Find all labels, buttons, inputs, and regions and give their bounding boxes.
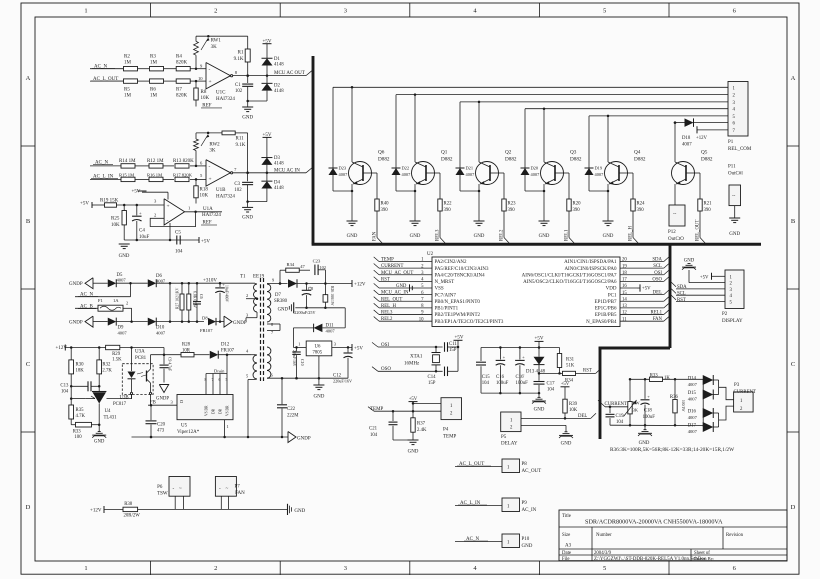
svg-text:U6: U6 <box>315 345 321 350</box>
svg-text:GND: GND <box>408 450 419 455</box>
svg-text:HAI7324: HAI7324 <box>216 195 235 200</box>
svg-text:P10: P10 <box>522 537 530 542</box>
svg-text:R36: R36 <box>670 395 679 400</box>
svg-text:2.7K: 2.7K <box>102 369 112 374</box>
svg-text:GND: GND <box>410 234 421 239</box>
svg-text:P5: P5 <box>501 435 507 440</box>
svg-text:--: -- <box>673 212 677 217</box>
svg-text:C9 4.7uF: C9 4.7uF <box>168 357 172 371</box>
svg-text:15P: 15P <box>428 381 436 386</box>
svg-text:GND: GND <box>313 395 324 400</box>
svg-text:4007: 4007 <box>682 143 692 148</box>
svg-text:C16': C16' <box>516 375 525 380</box>
svg-text:U5: U5 <box>181 424 188 429</box>
svg-text:4.7K: 4.7K <box>76 414 86 419</box>
svg-text:FAN: FAN <box>373 231 378 241</box>
svg-text:390: 390 <box>508 208 516 213</box>
svg-text:20: 20 <box>622 258 627 263</box>
svg-text:FR107: FR107 <box>221 348 235 353</box>
svg-text:REL2: REL2 <box>381 317 393 322</box>
svg-text:MCU_AC_OUT: MCU_AC_OUT <box>381 271 413 276</box>
svg-text:100uF: 100uF <box>516 381 529 386</box>
svg-text:HAI7324: HAI7324 <box>202 213 221 218</box>
svg-text:104: 104 <box>370 433 378 438</box>
svg-text:10: 10 <box>198 76 203 81</box>
svg-text:+: + <box>167 203 170 209</box>
svg-text:SDA: SDA <box>652 258 662 263</box>
svg-text:EP1C/PB6: EP1C/PB6 <box>595 307 617 312</box>
svg-text:5: 5 <box>603 565 606 572</box>
svg-text:REL_COM: REL_COM <box>728 147 752 152</box>
svg-text:9.1K: 9.1K <box>234 57 244 62</box>
svg-text:2200uF/25V: 2200uF/25V <box>294 310 315 315</box>
svg-text:VDD: VDD <box>606 287 617 292</box>
svg-text:Q4: Q4 <box>634 150 641 156</box>
svg-text:OSO: OSO <box>652 277 662 282</box>
svg-text:R30: R30 <box>76 363 85 368</box>
svg-text:3K: 3K <box>211 45 218 50</box>
svg-text:PA2/CIN2/AN2: PA2/CIN2/AN2 <box>435 260 468 265</box>
svg-text:104: 104 <box>616 420 624 425</box>
svg-text:REL3: REL3 <box>381 311 393 316</box>
svg-text:VS DR: VS DR <box>205 405 209 416</box>
svg-text:Z:\YGGZWJ\..\ST-DDB-820K-REL5A: Z:\YGGZWJ\..\ST-DDB-820K-REL5A V1.0nn.Sc… <box>594 557 707 562</box>
svg-text:1M: 1M <box>124 94 132 99</box>
svg-text:+5V: +5V <box>535 337 544 342</box>
svg-text:R15 1M: R15 1M <box>119 172 134 177</box>
svg-text:D23: D23 <box>339 166 347 171</box>
svg-text:222M: 222M <box>287 414 299 419</box>
svg-text:D: D <box>179 400 184 403</box>
svg-text:+5V: +5V <box>409 397 418 402</box>
svg-text:AIN5/OSC2/CLKO/T16GGI/T16GOSC2: AIN5/OSC2/CLKO/T16GGI/T16GOSC2/PA6 <box>523 280 617 285</box>
svg-text:HAI7324: HAI7324 <box>216 97 235 102</box>
svg-text:12: 12 <box>622 311 627 316</box>
svg-text:+5V: +5V <box>455 336 464 341</box>
svg-text:3K: 3K <box>633 408 639 413</box>
svg-text:PC1: PC1 <box>608 293 617 298</box>
svg-text:4007: 4007 <box>531 172 541 177</box>
svg-text:2: 2 <box>246 293 248 298</box>
svg-text:104: 104 <box>482 381 490 386</box>
svg-text:MCU_AC_IN: MCU_AC_IN <box>381 291 409 296</box>
svg-text:D882: D882 <box>441 157 453 163</box>
svg-text:D16: D16 <box>688 410 697 415</box>
svg-text:U4: U4 <box>105 409 111 414</box>
svg-text:D7: D7 <box>275 293 281 298</box>
svg-text:T1: T1 <box>240 275 246 280</box>
svg-text:4007: 4007 <box>688 415 698 420</box>
svg-text:OutCtO: OutCtO <box>668 237 684 242</box>
svg-text:6: 6 <box>219 378 221 382</box>
svg-text:R29: R29 <box>112 352 121 357</box>
svg-text:R39: R39 <box>569 402 578 407</box>
svg-text:C20: C20 <box>157 423 166 428</box>
svg-text:C3: C3 <box>234 182 240 187</box>
svg-text:A: A <box>26 75 31 82</box>
svg-text:Viper12A*: Viper12A* <box>177 430 200 435</box>
svg-text:R37: R37 <box>417 422 426 427</box>
svg-text:D22: D22 <box>402 166 410 171</box>
svg-text:P1: P1 <box>728 140 734 145</box>
svg-text:3: 3 <box>344 8 347 15</box>
svg-text:U3B: U3B <box>120 396 129 401</box>
svg-text:GNDP: GNDP <box>297 436 311 441</box>
svg-text:3K: 3K <box>209 149 216 154</box>
svg-text:AC_OUT: AC_OUT <box>522 469 542 474</box>
svg-text:-: - <box>173 486 175 492</box>
svg-text:4007: 4007 <box>339 172 349 177</box>
svg-text:Drawn By:: Drawn By: <box>694 556 714 561</box>
svg-text:R5: R5 <box>124 88 130 93</box>
svg-text:+12V: +12V <box>354 283 366 288</box>
svg-text:MCU AC IN: MCU AC IN <box>274 168 300 173</box>
svg-text:1: 1 <box>227 424 229 429</box>
svg-text:TSW: TSW <box>157 491 168 496</box>
svg-text:Drain: Drain <box>214 368 225 373</box>
svg-text:R13 820K: R13 820K <box>173 159 194 164</box>
svg-text:+5V: +5V <box>132 190 141 195</box>
svg-text:4148: 4148 <box>274 161 284 166</box>
svg-text:1: 1 <box>298 342 300 347</box>
svg-text:Size: Size <box>562 533 570 538</box>
svg-text:MCU AC OUT: MCU AC OUT <box>274 71 305 76</box>
svg-text:PB2/TE1PWM/PINT2: PB2/TE1PWM/PINT2 <box>435 313 481 318</box>
svg-text:REL1: REL1 <box>651 311 663 316</box>
svg-text:+: + <box>139 210 142 215</box>
svg-text:GNDP: GNDP <box>69 321 83 326</box>
svg-text:P3: P3 <box>734 383 740 388</box>
svg-text:16: 16 <box>622 284 627 289</box>
svg-text:-: - <box>167 217 169 223</box>
svg-text:TEMP: TEMP <box>443 434 457 439</box>
svg-text:GND: GND <box>639 441 650 446</box>
svg-text:4007: 4007 <box>326 329 336 334</box>
svg-text:390: 390 <box>637 208 645 213</box>
svg-text:GND: GND <box>347 234 358 239</box>
svg-text:SR380: SR380 <box>274 299 288 304</box>
svg-text:R14 1M: R14 1M <box>119 159 136 164</box>
svg-text:R17 820K: R17 820K <box>173 172 193 177</box>
svg-text:R1: R1 <box>238 51 244 56</box>
svg-text:Date: Date <box>562 551 571 556</box>
svg-text:C13: C13 <box>60 384 69 389</box>
svg-text:51K: 51K <box>566 364 575 369</box>
svg-text:R27 102/1KV: R27 102/1KV <box>176 287 180 309</box>
svg-text:CURRENT: CURRENT <box>605 402 627 407</box>
svg-text:390: 390 <box>444 208 452 213</box>
svg-text:104: 104 <box>547 388 555 393</box>
svg-text:P7: P7 <box>235 484 241 489</box>
svg-text:PA4/C20/T8NCKI/AIN4: PA4/C20/T8NCKI/AIN4 <box>435 273 486 278</box>
svg-text:TEMP: TEMP <box>381 258 394 263</box>
svg-text:~: ~ <box>179 486 182 492</box>
svg-text:SCL: SCL <box>653 264 662 269</box>
svg-text:D21: D21 <box>466 166 474 171</box>
svg-text:100uF: 100uF <box>496 381 509 386</box>
svg-text:R38: R38 <box>124 502 133 507</box>
svg-text:1M: 1M <box>150 94 158 99</box>
svg-text:C1: C1 <box>235 83 241 88</box>
svg-text:DEL: DEL <box>578 414 587 419</box>
svg-text:+5V: +5V <box>561 382 570 387</box>
svg-text:C11: C11 <box>449 342 457 347</box>
svg-text:B: B <box>26 218 31 225</box>
svg-text:820K: 820K <box>176 61 188 66</box>
svg-text:D: D <box>791 504 796 511</box>
svg-text:390: 390 <box>704 208 712 213</box>
svg-text:+12V: +12V <box>90 508 102 513</box>
svg-text:GNDP: GNDP <box>233 321 247 326</box>
svg-text:FAN: FAN <box>653 317 663 322</box>
svg-text:1: 1 <box>84 565 87 572</box>
svg-text:20R/2W: 20R/2W <box>124 513 141 518</box>
svg-text:+5V: +5V <box>642 287 651 292</box>
svg-text:390: 390 <box>573 208 581 213</box>
svg-text:R33: R33 <box>73 430 82 435</box>
svg-text:R2: R2 <box>124 55 130 60</box>
svg-text:+5V: +5V <box>354 346 363 351</box>
svg-text:1: 1 <box>84 8 87 15</box>
svg-text:C21: C21 <box>369 427 378 432</box>
svg-text:U1C: U1C <box>216 91 226 96</box>
svg-text:1M: 1M <box>124 61 132 66</box>
svg-text:104: 104 <box>175 250 183 255</box>
svg-text:8: 8 <box>205 378 207 382</box>
svg-text:U2: U2 <box>427 252 434 257</box>
svg-text:DEL: DEL <box>653 291 662 296</box>
svg-text:D882: D882 <box>505 157 517 163</box>
svg-text:Number: Number <box>596 533 612 538</box>
svg-text:F1: F1 <box>98 298 104 303</box>
svg-text:PC817: PC817 <box>113 402 127 407</box>
svg-text:15: 15 <box>622 291 627 296</box>
svg-text:PA5/REF/C10/CIN3/AIN3: PA5/REF/C10/CIN3/AIN3 <box>435 267 489 272</box>
svg-text:REL1: REL1 <box>565 229 570 241</box>
svg-text:EP1B/PB5: EP1B/PB5 <box>595 313 617 318</box>
svg-text:2.4K: 2.4K <box>417 428 427 433</box>
svg-text:A3: A3 <box>565 544 572 549</box>
svg-text:SCL: SCL <box>677 292 686 297</box>
svg-text:7805: 7805 <box>313 351 323 356</box>
svg-text:C23: C23 <box>313 258 321 263</box>
svg-text:4148: 4148 <box>274 63 284 68</box>
svg-text:10uF: 10uF <box>139 235 150 240</box>
svg-text:GND: GND <box>603 234 614 239</box>
svg-text:N_EPAS0/PB4: N_EPAS0/PB4 <box>586 320 617 325</box>
svg-text:D12: D12 <box>221 343 230 348</box>
svg-text:R25: R25 <box>111 217 120 222</box>
svg-text:R24: R24 <box>637 202 646 207</box>
svg-text:4148: 4148 <box>274 89 284 94</box>
svg-text:4007: 4007 <box>466 172 476 177</box>
svg-text:RST: RST <box>381 277 390 282</box>
svg-text:17: 17 <box>622 278 627 283</box>
svg-text:REL_OUT: REL_OUT <box>696 220 701 241</box>
svg-text:OutC#l: OutC#l <box>728 172 743 177</box>
svg-text:+5V: +5V <box>201 239 210 244</box>
svg-text:FR107: FR107 <box>200 328 213 333</box>
svg-text:473: 473 <box>157 429 165 434</box>
svg-text:5: 5 <box>603 8 606 15</box>
svg-text:D20: D20 <box>531 166 539 171</box>
svg-text:SDR/ACDR8000VA-20000VA CNH550: SDR/ACDR8000VA-20000VA CNH5500VA-18000VA <box>585 519 723 526</box>
svg-text:--: -- <box>732 194 736 199</box>
svg-text:10: 10 <box>419 317 424 322</box>
svg-text:D882: D882 <box>570 157 582 163</box>
svg-text:GNDP: GNDP <box>156 397 169 402</box>
svg-text:+: + <box>209 176 212 182</box>
svg-text:+: + <box>522 355 525 360</box>
svg-text:D: D <box>26 504 31 511</box>
svg-text:R33: R33 <box>650 373 659 378</box>
svg-text:C4: C4 <box>139 229 145 234</box>
svg-text:16MHz: 16MHz <box>404 361 420 366</box>
svg-text:N_MRST: N_MRST <box>435 280 455 285</box>
svg-text:P8: P8 <box>522 462 528 467</box>
svg-text:R6: R6 <box>150 88 156 93</box>
svg-text:GND: GND <box>534 408 545 413</box>
svg-text:Title: Title <box>562 514 571 519</box>
svg-text:GND: GND <box>684 259 695 264</box>
svg-text:DR: DR <box>212 408 216 414</box>
svg-text:GND: GND <box>242 115 253 120</box>
svg-text:4148: 4148 <box>274 186 284 191</box>
svg-text:FAN: FAN <box>235 491 245 496</box>
svg-text:4007: 4007 <box>688 429 698 434</box>
svg-text:+: + <box>209 79 212 85</box>
svg-text:Q3: Q3 <box>570 150 577 156</box>
svg-text:R16 1M: R16 1M <box>147 172 162 177</box>
svg-text:U1B: U1B <box>216 188 226 193</box>
svg-text:U1A: U1A <box>203 207 213 212</box>
svg-text:REL2: REL2 <box>500 229 505 241</box>
svg-text:R34: R34 <box>287 262 295 267</box>
svg-text:1A: 1A <box>113 298 119 303</box>
svg-text:100uF: 100uF <box>643 415 656 420</box>
svg-text:18K: 18K <box>76 369 85 374</box>
svg-text:4007: 4007 <box>402 172 412 177</box>
svg-text:A: A <box>791 75 796 82</box>
svg-text:-: - <box>219 486 221 492</box>
svg-text:R28: R28 <box>182 343 191 348</box>
svg-text:+5V: +5V <box>700 275 709 280</box>
svg-text:D882: D882 <box>634 157 646 163</box>
svg-text:P6: P6 <box>157 485 163 490</box>
svg-text:100: 100 <box>74 435 82 440</box>
svg-text:R21: R21 <box>704 202 713 207</box>
svg-text:+5V: +5V <box>80 202 89 207</box>
svg-text:9.1K: 9.1K <box>236 143 246 148</box>
svg-text:10K: 10K <box>201 96 210 101</box>
svg-text:AC_IN: AC_IN <box>522 508 537 513</box>
svg-text:3: 3 <box>344 565 347 572</box>
svg-text:220uF/16V: 220uF/16V <box>292 350 296 367</box>
svg-text:~: ~ <box>226 486 229 492</box>
svg-text:4007: 4007 <box>118 331 128 336</box>
svg-text:C6: C6 <box>199 294 204 299</box>
svg-text:C19: C19 <box>616 414 625 419</box>
svg-text:GND: GND <box>474 234 485 239</box>
svg-text:10R: 10R <box>182 348 191 353</box>
svg-text:GND: GND <box>396 284 407 289</box>
svg-text:+: + <box>350 347 353 352</box>
svg-text:CURRENT: CURRENT <box>381 264 403 269</box>
svg-text:10K: 10K <box>569 408 578 413</box>
svg-text:C: C <box>791 361 795 368</box>
svg-text:P9: P9 <box>522 501 528 506</box>
svg-text:2: 2 <box>126 301 128 306</box>
svg-text:PB3/EP1A/TE2CO/TE2CI/PINT3: PB3/EP1A/TE2CO/TE2CI/PINT3 <box>435 320 504 325</box>
svg-text:Q6: Q6 <box>378 150 385 156</box>
svg-text:13: 13 <box>622 304 627 309</box>
svg-text:VS DR: VS DR <box>226 405 230 416</box>
svg-text:GND: GND <box>94 439 105 444</box>
svg-text:D882: D882 <box>701 157 713 163</box>
svg-text:RW2: RW2 <box>209 142 220 147</box>
svg-text:R18: R18 <box>200 187 209 192</box>
svg-text:RW1: RW1 <box>211 39 222 44</box>
svg-text:REL_OUT: REL_OUT <box>381 297 402 302</box>
svg-text:R32: R32 <box>102 363 111 368</box>
svg-text:1K: 1K <box>664 376 670 381</box>
svg-text:PB1/PINT1: PB1/PINT1 <box>435 307 459 312</box>
svg-text:C14: C14 <box>428 375 437 380</box>
svg-text:P12: P12 <box>668 230 676 235</box>
svg-text:GND: GND <box>278 307 289 312</box>
svg-text:RST: RST <box>677 298 686 303</box>
svg-text:11: 11 <box>622 317 627 322</box>
svg-text:GND: GND <box>561 442 572 447</box>
svg-text:+: + <box>647 394 650 399</box>
svg-text:104: 104 <box>61 390 69 395</box>
svg-text:102: 102 <box>235 89 243 94</box>
svg-text:C16: C16 <box>496 375 505 380</box>
svg-text:D2: D2 <box>274 84 280 89</box>
svg-text:C18: C18 <box>644 409 653 414</box>
svg-text:D882: D882 <box>378 157 390 163</box>
svg-text:+310V: +310V <box>203 279 217 284</box>
svg-text:RST: RST <box>583 369 592 374</box>
svg-text:REL_H: REL_H <box>629 226 634 241</box>
svg-text:2: 2 <box>214 8 217 15</box>
svg-text:R11: R11 <box>236 137 245 142</box>
svg-text:D1: D1 <box>274 57 280 62</box>
svg-text:D8: D8 <box>202 315 208 320</box>
svg-text:4007: 4007 <box>688 396 698 401</box>
svg-text:VSS: VSS <box>435 287 444 292</box>
svg-text:100/1W: 100/1W <box>681 400 685 412</box>
svg-text:D17: D17 <box>688 424 697 429</box>
svg-text:PC81: PC81 <box>135 356 147 361</box>
svg-text:GND: GND <box>294 509 305 514</box>
svg-text:R20: R20 <box>573 202 582 207</box>
svg-text:D3: D3 <box>274 156 280 161</box>
svg-text:U3A: U3A <box>135 350 145 355</box>
svg-text:10K: 10K <box>200 194 209 199</box>
svg-text:PB0/N_EPAS1/PINT0: PB0/N_EPAS1/PINT0 <box>435 300 481 305</box>
svg-text:PC7/AIN7: PC7/AIN7 <box>435 293 457 298</box>
svg-text:P11: P11 <box>728 165 736 170</box>
svg-text:R3: R3 <box>150 55 156 60</box>
svg-text:GND: GND <box>242 216 253 221</box>
svg-text:1.5K: 1.5K <box>112 358 122 363</box>
svg-text:R8: R8 <box>201 90 207 95</box>
svg-text:2: 2 <box>214 565 217 572</box>
svg-text:7: 7 <box>212 378 214 382</box>
svg-text:R22: R22 <box>444 202 453 207</box>
svg-text:10uF/400V: 10uF/400V <box>225 285 229 303</box>
